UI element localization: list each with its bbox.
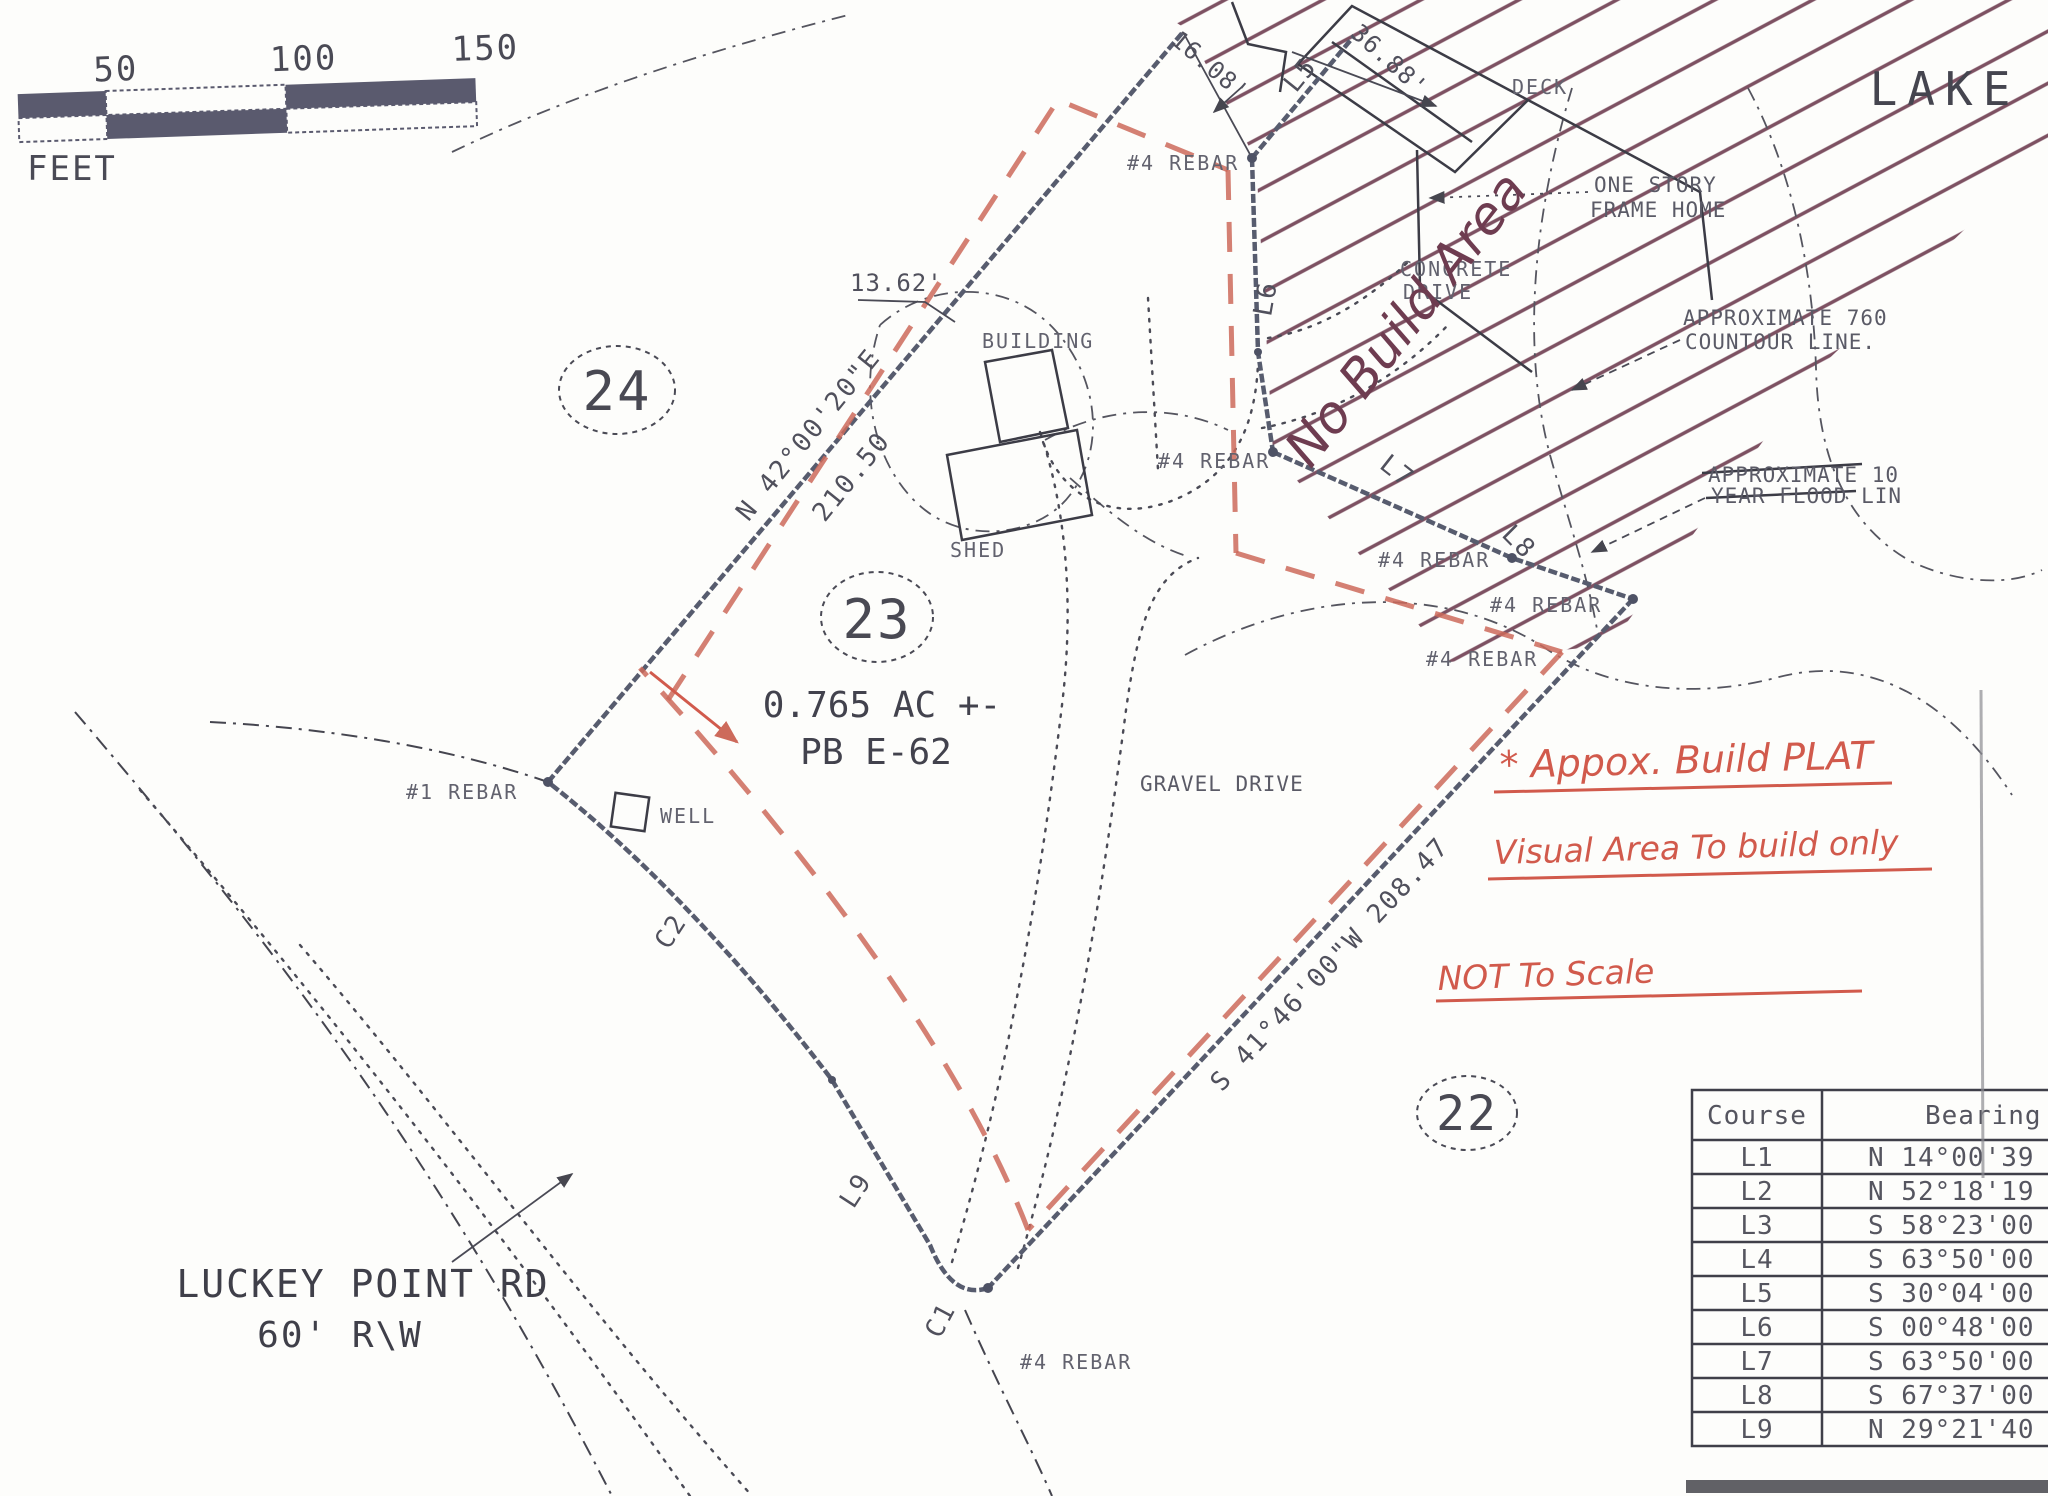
boundary-road-frontage xyxy=(548,782,988,1290)
table-row-course: L1 xyxy=(1740,1143,1773,1173)
scale-tick-50: 50 xyxy=(93,49,139,91)
setback-fork-arrow xyxy=(650,672,737,742)
plat-drawing: 50 100 150 FEET LAKE DECK ONE STORY FRAM… xyxy=(0,0,2048,1496)
well-symbol xyxy=(611,793,649,831)
course-L6-label: L6 xyxy=(1248,279,1284,319)
table-row-bearing: N 52°18'19 xyxy=(1868,1177,2035,1207)
gravel-drive-label: GRAVEL DRIVE xyxy=(1140,772,1304,796)
road-edge-south xyxy=(965,1310,1052,1496)
boundary-se xyxy=(988,599,1633,1288)
pen-note-3: NOT To Scale xyxy=(1437,951,1655,998)
scan-band-bottom xyxy=(1686,1480,2048,1493)
course-bearing-table: Course Bearing L1 N 14°00'39 L2 N 52°18'… xyxy=(1692,1090,2048,1446)
lot22-number: 22 xyxy=(1436,1086,1498,1142)
table-row-course: L6 xyxy=(1740,1313,1773,1343)
scale-seg-4 xyxy=(18,115,107,142)
scale-tick-100: 100 xyxy=(269,38,338,80)
bearing-nw-label: N 42°00'20"E xyxy=(730,343,887,527)
flood-note-2: YEAR FLOOD LIN xyxy=(1711,484,1902,508)
road-name-label: LUCKEY POINT RD xyxy=(176,1262,549,1306)
table-row-bearing: S 63°50'00 xyxy=(1868,1245,2035,1275)
table-row-bearing: N 29°21'40 xyxy=(1868,1415,2035,1445)
table-row-bearing: S 67°37'00 xyxy=(1868,1381,2035,1411)
survey-plat-page: 50 100 150 FEET LAKE DECK ONE STORY FRAM… xyxy=(0,0,2048,1496)
drive-dotted-segment xyxy=(1148,298,1158,470)
table-row-bearing: S 63°50'00 xyxy=(1868,1347,2035,1377)
contour-note-1: APPROXIMATE 760 xyxy=(1683,306,1888,330)
plat-book-label: PB E-62 xyxy=(800,732,952,773)
table-row-bearing: N 14°00'39 xyxy=(1868,1143,2035,1173)
scale-seg-3 xyxy=(285,78,476,109)
deck-label: DECK xyxy=(1512,75,1568,99)
scale-unit-label: FEET xyxy=(27,149,117,189)
course-C2-label: C2 xyxy=(649,909,693,955)
pen-note-1: * Appox. Build PLAT xyxy=(1499,733,1876,787)
setback-se xyxy=(1028,652,1562,1230)
scale-seg-5 xyxy=(106,109,287,139)
pen-note-2-underline xyxy=(1488,869,1932,879)
table-row-course: L3 xyxy=(1740,1211,1773,1241)
rebar4-label-r2: #4 REBAR xyxy=(1490,593,1602,617)
road-center-dotted-1 xyxy=(140,790,690,1496)
course-C1-label: C1 xyxy=(919,1298,962,1343)
table-row-course: L9 xyxy=(1740,1415,1773,1445)
course-L9-label: L9 xyxy=(834,1168,878,1214)
scale-seg-1 xyxy=(18,91,107,118)
dim-13-62: 13.62' xyxy=(850,269,943,297)
home-label-1: ONE STORY xyxy=(1594,173,1717,197)
rebar4-label-r3: #4 REBAR xyxy=(1426,647,1538,671)
scale-tick-150: 150 xyxy=(451,28,520,70)
contour-mid2 xyxy=(1045,412,1228,440)
rebar1-label: #1 REBAR xyxy=(406,780,518,804)
rebar4-label-r1: #4 REBAR xyxy=(1378,548,1490,572)
road-inner-edge-north xyxy=(210,722,548,782)
table-row-course: L7 xyxy=(1740,1347,1773,1377)
bearing-se-label: S 41°46'00"W 208.47 xyxy=(1205,832,1456,1098)
home-label-2: FRAME HOME xyxy=(1590,198,1726,222)
table-row-course: L4 xyxy=(1740,1245,1773,1275)
lot23-number: 23 xyxy=(842,588,911,651)
road-outer-edge xyxy=(75,712,612,1496)
table-header-course: Course xyxy=(1707,1101,1807,1131)
well-label: WELL xyxy=(660,804,716,828)
contour-note-2: COUNTOUR LINE. xyxy=(1685,330,1876,354)
drive-loop xyxy=(1040,362,1258,509)
leader-road-label xyxy=(452,1174,572,1262)
contour-loop-buildings xyxy=(870,292,1093,532)
road-lines xyxy=(75,712,1052,1496)
pen-note-2: Visual Area To build only xyxy=(1493,822,1899,872)
lot-area-label: 0.765 AC +- xyxy=(763,685,1001,726)
table-row-bearing: S 58°23'00 xyxy=(1868,1211,2035,1241)
rebar4-label-bottom: #4 REBAR xyxy=(1020,1350,1132,1374)
shed-label: SHED xyxy=(950,538,1006,562)
rebar4-label-mid: #4 REBAR xyxy=(1158,449,1270,473)
page-edge-line xyxy=(1981,690,1983,1178)
table-row-bearing: S 30°04'00 xyxy=(1868,1279,2035,1309)
building-label: BUILDING xyxy=(982,329,1094,353)
setback-L6 xyxy=(1228,170,1236,553)
road-center-dotted-2 xyxy=(300,945,752,1496)
table-row-course: L2 xyxy=(1740,1177,1773,1207)
lake-label: LAKE xyxy=(1870,62,2021,116)
table-row-bearing: S 00°48'00 xyxy=(1868,1313,2035,1343)
building-outline xyxy=(985,350,1068,442)
table-row-course: L5 xyxy=(1740,1279,1773,1309)
scale-bar: 50 100 150 xyxy=(16,28,522,142)
rebar4-label-top: #4 REBAR xyxy=(1127,151,1239,175)
lot24-number: 24 xyxy=(582,360,651,423)
table-row-course: L8 xyxy=(1740,1381,1773,1411)
setback-nw xyxy=(668,100,1228,700)
road-row-label: 60' R\W xyxy=(257,1315,423,1356)
